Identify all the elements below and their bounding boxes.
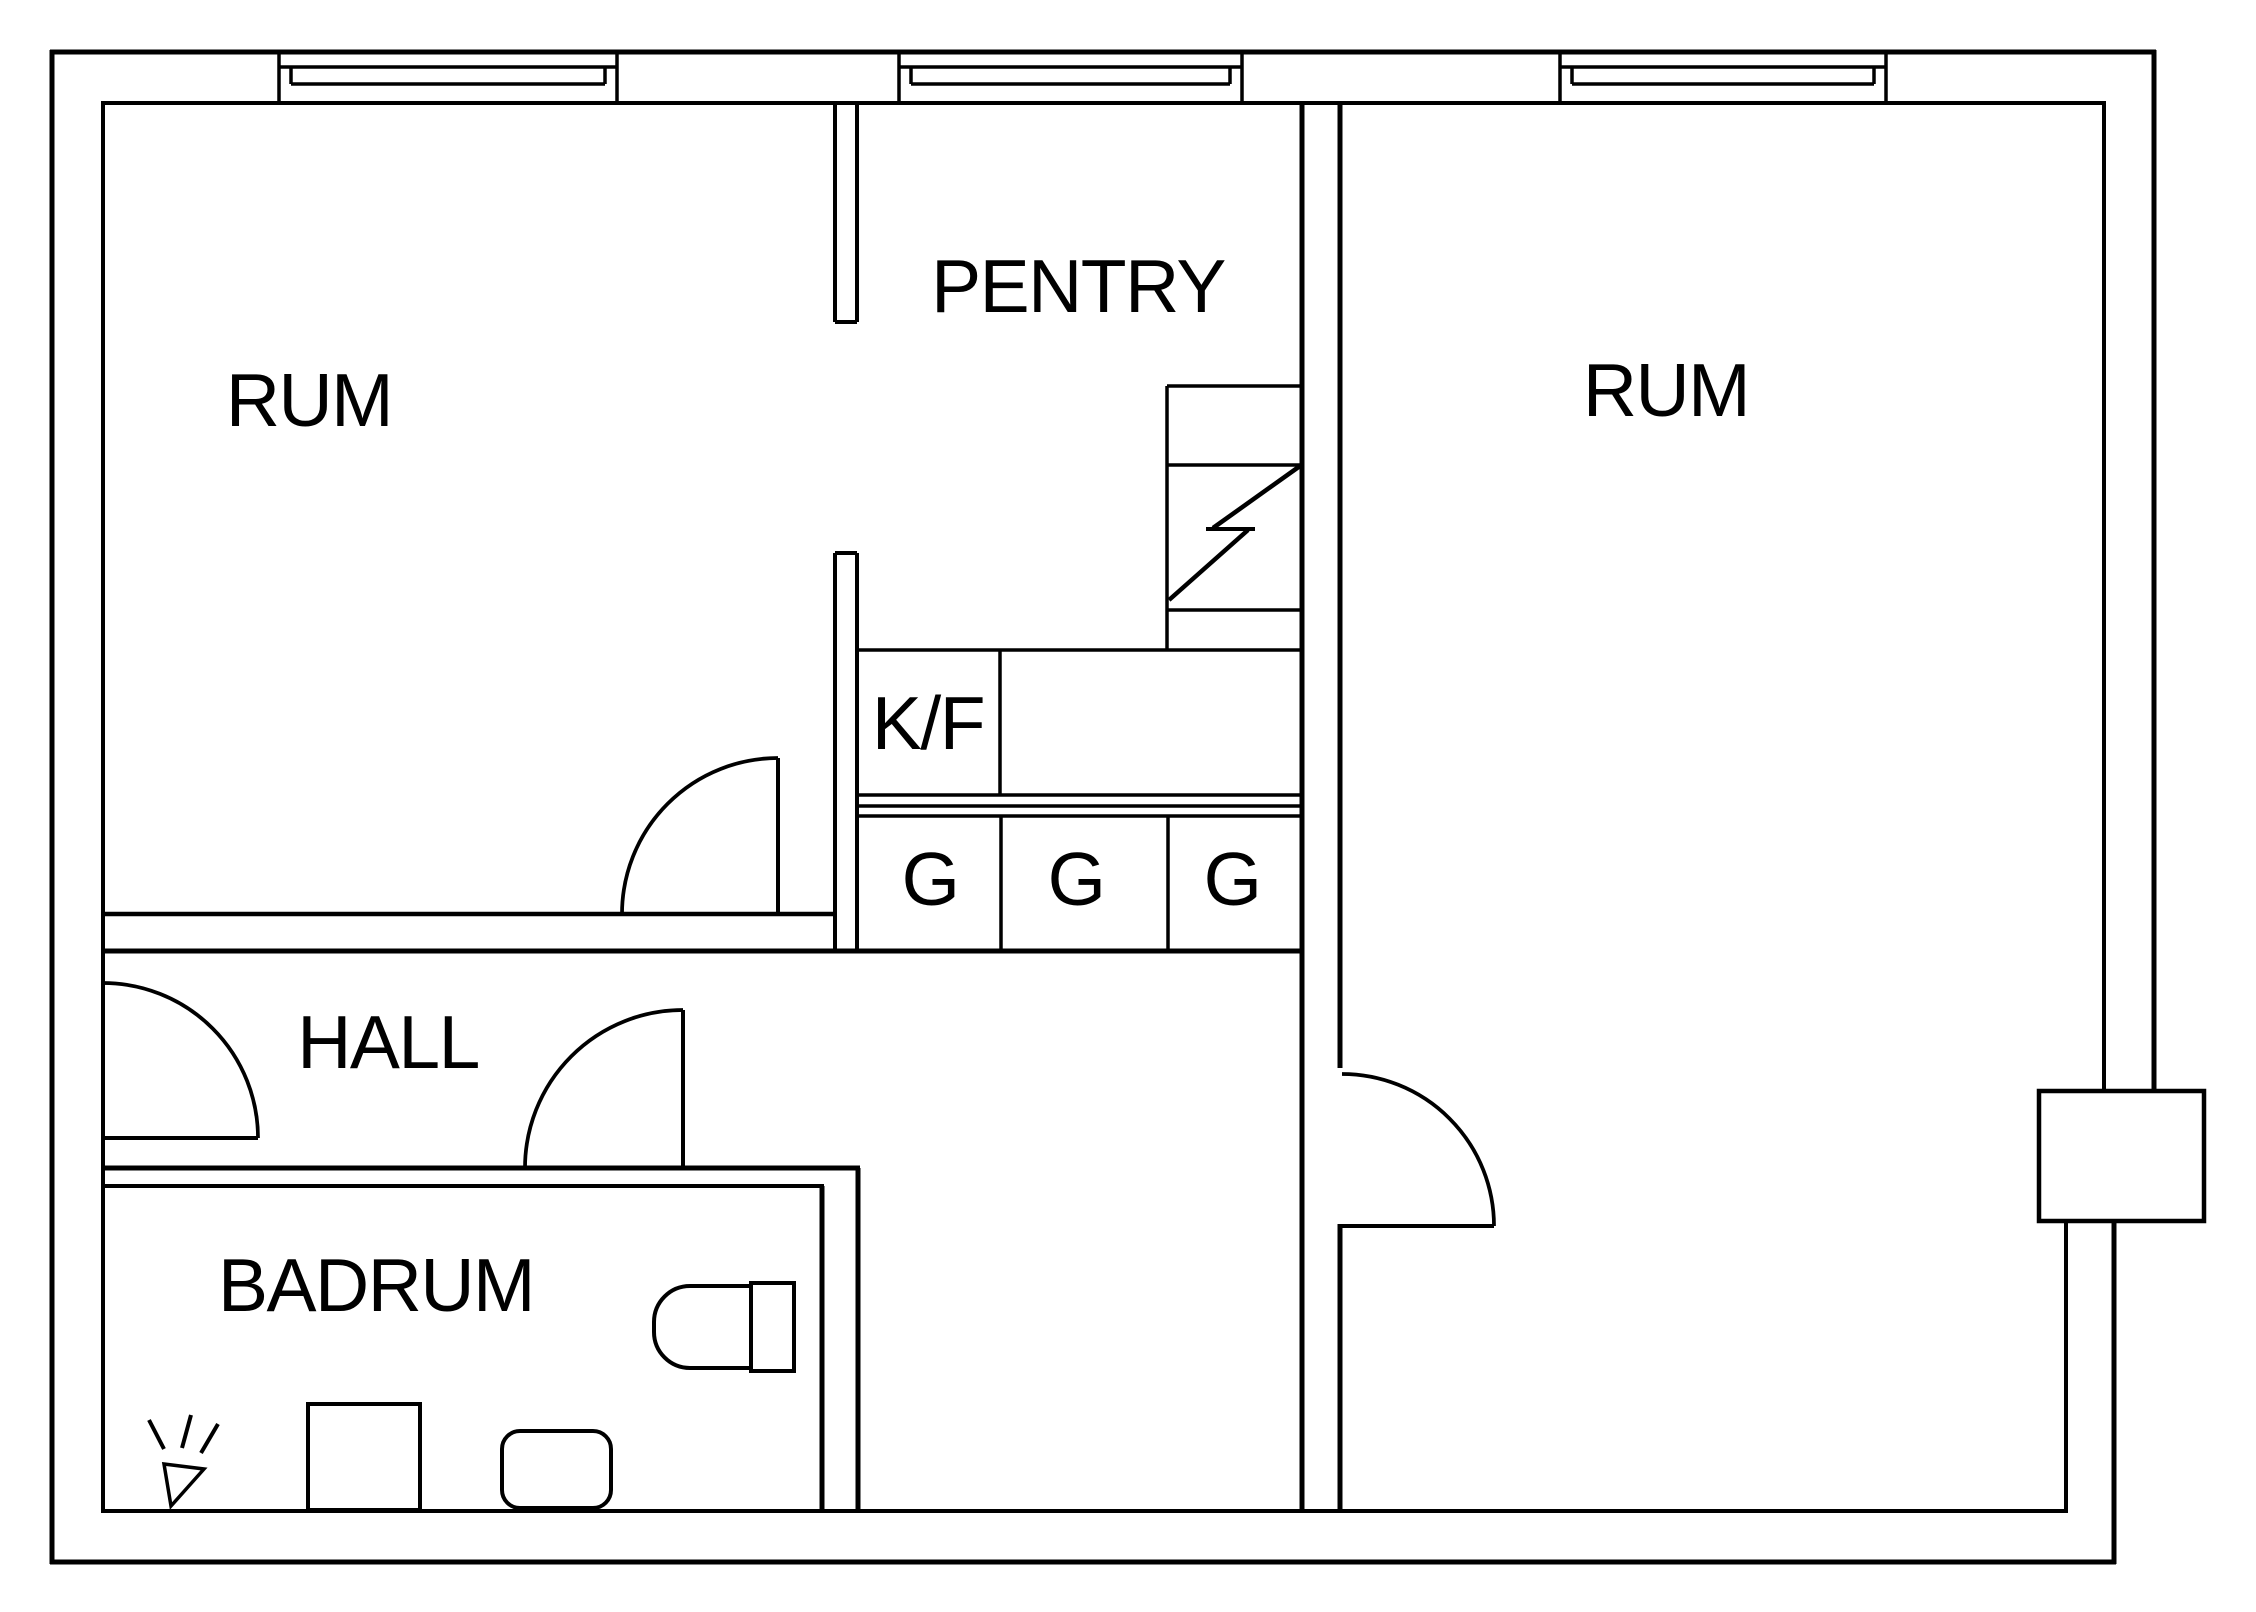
svg-text:PENTRY: PENTRY	[931, 244, 1225, 328]
svg-text:K/F: K/F	[872, 681, 984, 765]
svg-text:HALL: HALL	[297, 1000, 479, 1084]
svg-text:RUM: RUM	[226, 358, 392, 442]
svg-text:BADRUM: BADRUM	[218, 1243, 534, 1327]
svg-text:G: G	[902, 837, 959, 921]
svg-text:RUM: RUM	[1583, 348, 1749, 432]
svg-text:G: G	[1048, 837, 1105, 921]
svg-text:G: G	[1204, 837, 1261, 921]
